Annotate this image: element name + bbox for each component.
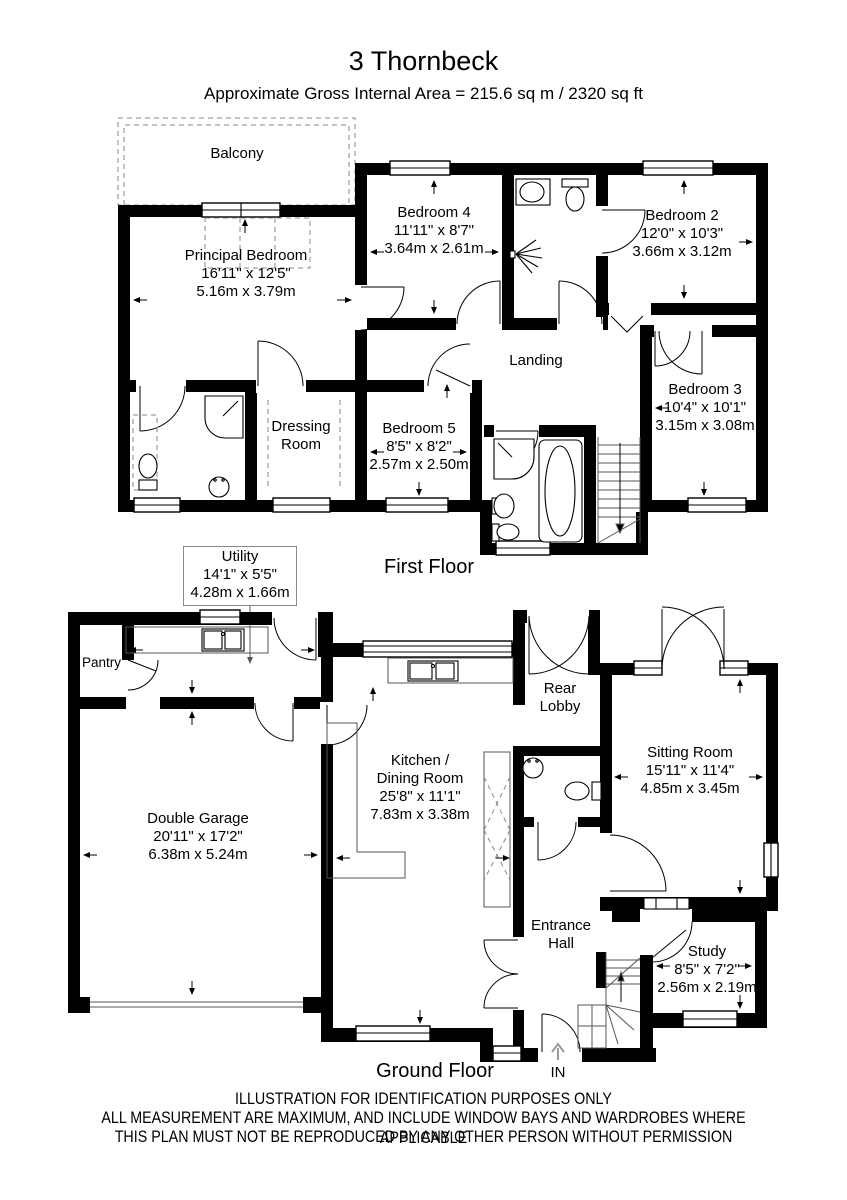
floorplan-drawing bbox=[0, 0, 847, 1200]
fireplace bbox=[644, 898, 689, 909]
double-garage-label: Double Garage 20'11" x 17'2" 6.38m x 5.2… bbox=[147, 810, 249, 864]
garage-door bbox=[90, 1002, 303, 1007]
utility-counter bbox=[126, 627, 268, 653]
disclaimer-line-3: THIS PLAN MUST NOT BE REPRODUCED BY ANY … bbox=[68, 1127, 779, 1147]
study-label: Study 8'5" x 7'2" 2.56m x 2.19m bbox=[657, 943, 756, 997]
pantry-label: Pantry bbox=[82, 655, 121, 670]
wc-toilet-fixture bbox=[565, 782, 601, 800]
bedroom2-label: Bedroom 2 12'0" x 10'3" 3.66m x 3.12m bbox=[632, 207, 731, 261]
dressing-room-label: Dressing Room bbox=[271, 418, 330, 454]
ensuite-toilet-fixture bbox=[139, 454, 157, 490]
utility-callout: Utility 14'1" x 5'5" 4.28m x 1.66m bbox=[183, 546, 297, 606]
bath-fixture bbox=[539, 440, 582, 542]
page-title: 3 Thornbeck bbox=[0, 46, 847, 77]
first-floor-label: First Floor bbox=[384, 556, 474, 579]
shower-spray-icon bbox=[510, 240, 542, 273]
entrance-hall-label: Entrance Hall bbox=[531, 917, 591, 953]
disclaimer-line-1: ILLUSTRATION FOR IDENTIFICATION PURPOSES… bbox=[68, 1089, 779, 1109]
floorplan-page: 3 Thornbeck Approximate Gross Internal A… bbox=[0, 0, 847, 1200]
first-floor-stairs bbox=[598, 437, 640, 543]
bedroom4-label: Bedroom 4 11'11" x 8'7" 3.64m x 2.61m bbox=[384, 204, 483, 258]
ground-floor-label: Ground Floor bbox=[376, 1060, 494, 1083]
sitting-room-label: Sitting Room 15'11" x 11'4" 4.85m x 3.45… bbox=[640, 744, 739, 798]
bathroom-sink-fixture bbox=[492, 494, 514, 518]
bedroom3-label: Bedroom 3 10'4" x 10'1" 3.15m x 3.08m bbox=[655, 381, 754, 435]
ensuite-shower-fixture bbox=[205, 396, 243, 438]
rear-lobby-label: Rear Lobby bbox=[540, 680, 581, 716]
ensuite-sink-fixture bbox=[209, 477, 229, 497]
showerroom-sink-fixture bbox=[516, 179, 550, 205]
kitchen-dining-label: Kitchen / Dining Room 25'8" x 11'1" 7.83… bbox=[370, 752, 469, 824]
bedroom5-label: Bedroom 5 8'5" x 8'2" 2.57m x 2.50m bbox=[369, 420, 468, 474]
balcony-label: Balcony bbox=[210, 145, 263, 163]
entrance-in-label: IN bbox=[551, 1064, 566, 1081]
showerroom-toilet-fixture bbox=[562, 179, 588, 211]
bathroom-toilet-fixture bbox=[492, 524, 519, 541]
principal-bedroom-label: Principal Bedroom 16'11" x 12'5" 5.16m x… bbox=[185, 247, 308, 301]
ground-floor-stairs bbox=[578, 952, 640, 1048]
utility-callout-pointer bbox=[247, 602, 253, 664]
wc-sink-fixture bbox=[523, 758, 543, 778]
page-subtitle: Approximate Gross Internal Area = 215.6 … bbox=[0, 84, 847, 104]
landing-label: Landing bbox=[509, 352, 562, 370]
bathroom-shower-fixture bbox=[494, 439, 534, 479]
